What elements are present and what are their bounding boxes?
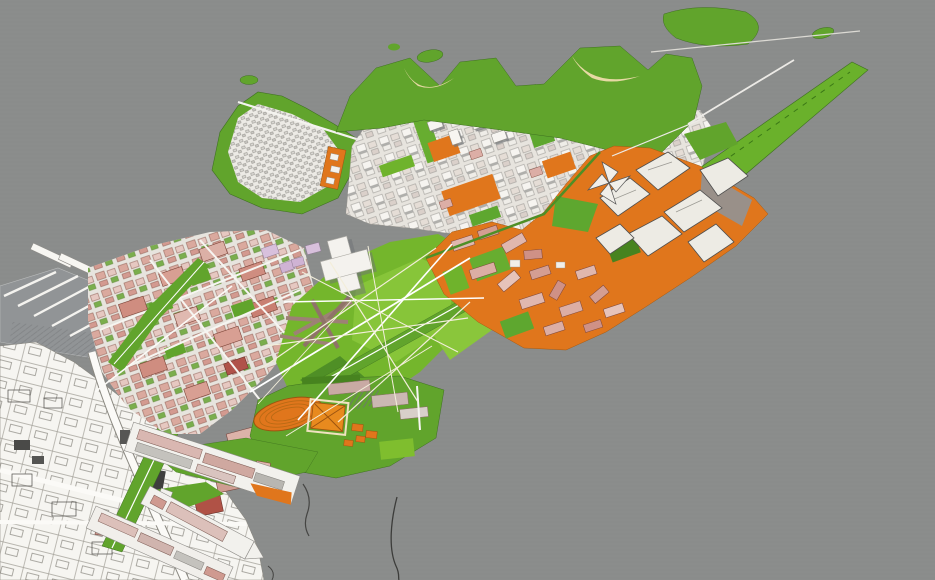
masterplan-canvas bbox=[0, 0, 935, 580]
lawn bbox=[379, 438, 415, 459]
court bbox=[366, 430, 378, 438]
court bbox=[356, 436, 366, 443]
islet bbox=[240, 76, 258, 85]
masterplan-map bbox=[0, 0, 935, 580]
court bbox=[352, 423, 364, 431]
building bbox=[556, 262, 565, 268]
court bbox=[344, 440, 354, 447]
building bbox=[32, 456, 44, 464]
islet bbox=[388, 44, 400, 51]
building bbox=[14, 440, 30, 450]
building bbox=[524, 249, 543, 260]
building bbox=[510, 260, 520, 267]
